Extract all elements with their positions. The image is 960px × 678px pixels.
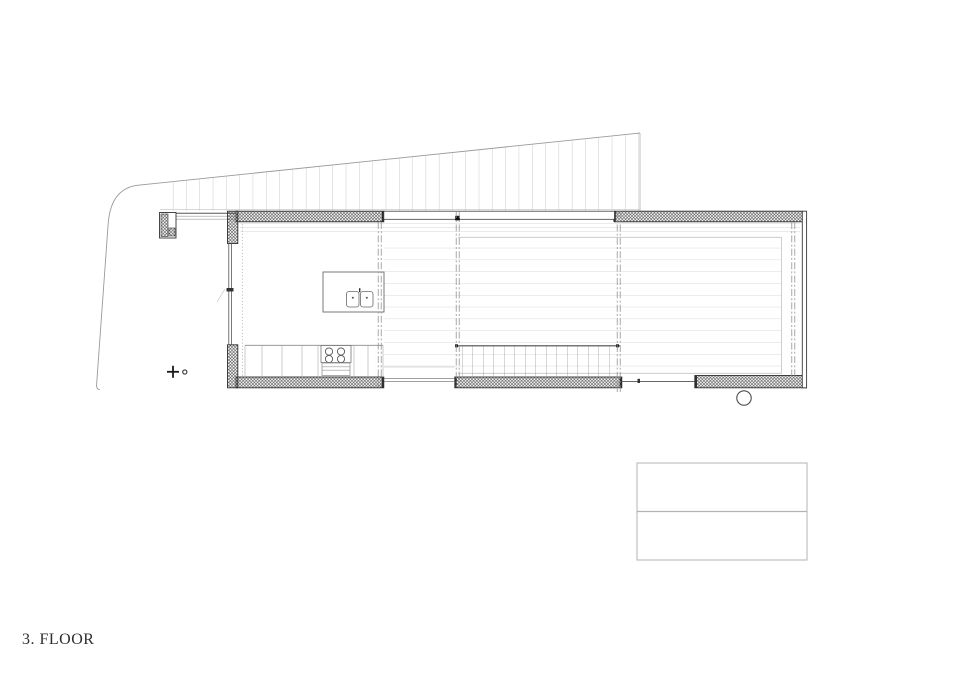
floor-plan-drawing bbox=[0, 0, 960, 678]
freestanding-wall-pier bbox=[160, 213, 177, 239]
window-mullion bbox=[227, 288, 234, 292]
cooktop bbox=[321, 346, 351, 376]
kitchen-island bbox=[323, 272, 384, 312]
sink-right bbox=[361, 292, 374, 308]
stair-treads bbox=[455, 344, 620, 377]
level-marker-cross bbox=[167, 366, 187, 378]
title-block bbox=[637, 463, 807, 560]
drawing-sheet: 3. FLOOR bbox=[0, 0, 960, 678]
sloped-roof-hatch bbox=[160, 133, 640, 211]
entry-bridge bbox=[176, 213, 236, 219]
door-pivot-marker bbox=[638, 379, 641, 383]
ceiling-beam-lines bbox=[240, 224, 800, 232]
column-circle bbox=[737, 391, 751, 405]
oven-front bbox=[322, 363, 350, 376]
floor-label: 3. FLOOR bbox=[22, 631, 94, 649]
sink-left bbox=[347, 292, 360, 308]
